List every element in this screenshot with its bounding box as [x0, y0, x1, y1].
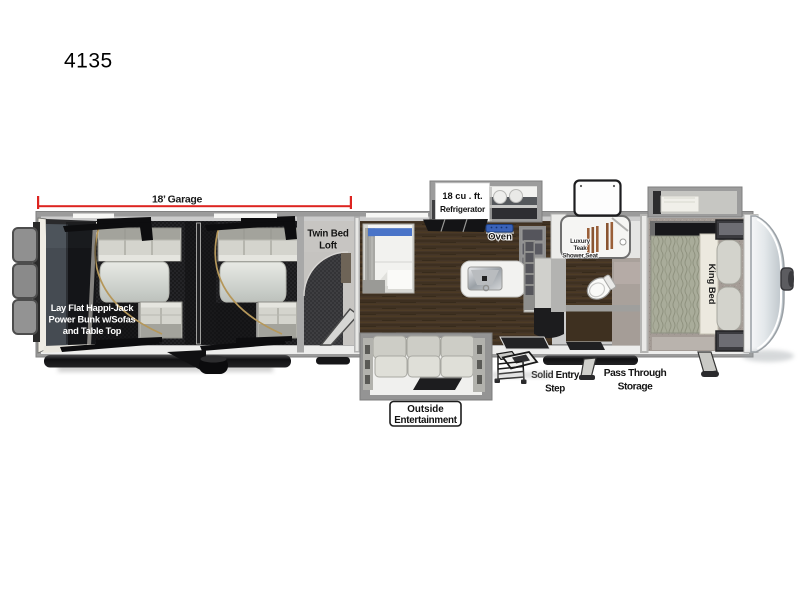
- svg-text:and Table Top: and Table Top: [63, 326, 122, 336]
- svg-text:King Bed: King Bed: [707, 264, 717, 305]
- svg-text:Luxury: Luxury: [570, 238, 590, 245]
- svg-text:Step: Step: [545, 384, 565, 395]
- svg-text:4135: 4135: [64, 50, 113, 73]
- svg-text:Storage: Storage: [618, 382, 654, 393]
- svg-text:Power Bunk w/Sofas: Power Bunk w/Sofas: [49, 315, 136, 325]
- svg-text:18’ Garage: 18’ Garage: [152, 194, 203, 206]
- svg-text:Oven: Oven: [488, 232, 512, 243]
- svg-text:18 cu . ft.: 18 cu . ft.: [442, 191, 482, 201]
- svg-text:Outside: Outside: [407, 404, 444, 415]
- svg-text:Refrigerator: Refrigerator: [440, 204, 486, 214]
- svg-text:Teak: Teak: [573, 245, 587, 252]
- svg-text:Loft: Loft: [319, 241, 338, 252]
- svg-text:Shower Seat: Shower Seat: [562, 253, 599, 260]
- svg-text:Pass Through: Pass Through: [604, 368, 667, 379]
- svg-text:Twin Bed: Twin Bed: [307, 229, 348, 240]
- svg-text:Lay Flat Happi-Jack: Lay Flat Happi-Jack: [51, 303, 135, 313]
- svg-text:Entertainment: Entertainment: [394, 415, 458, 426]
